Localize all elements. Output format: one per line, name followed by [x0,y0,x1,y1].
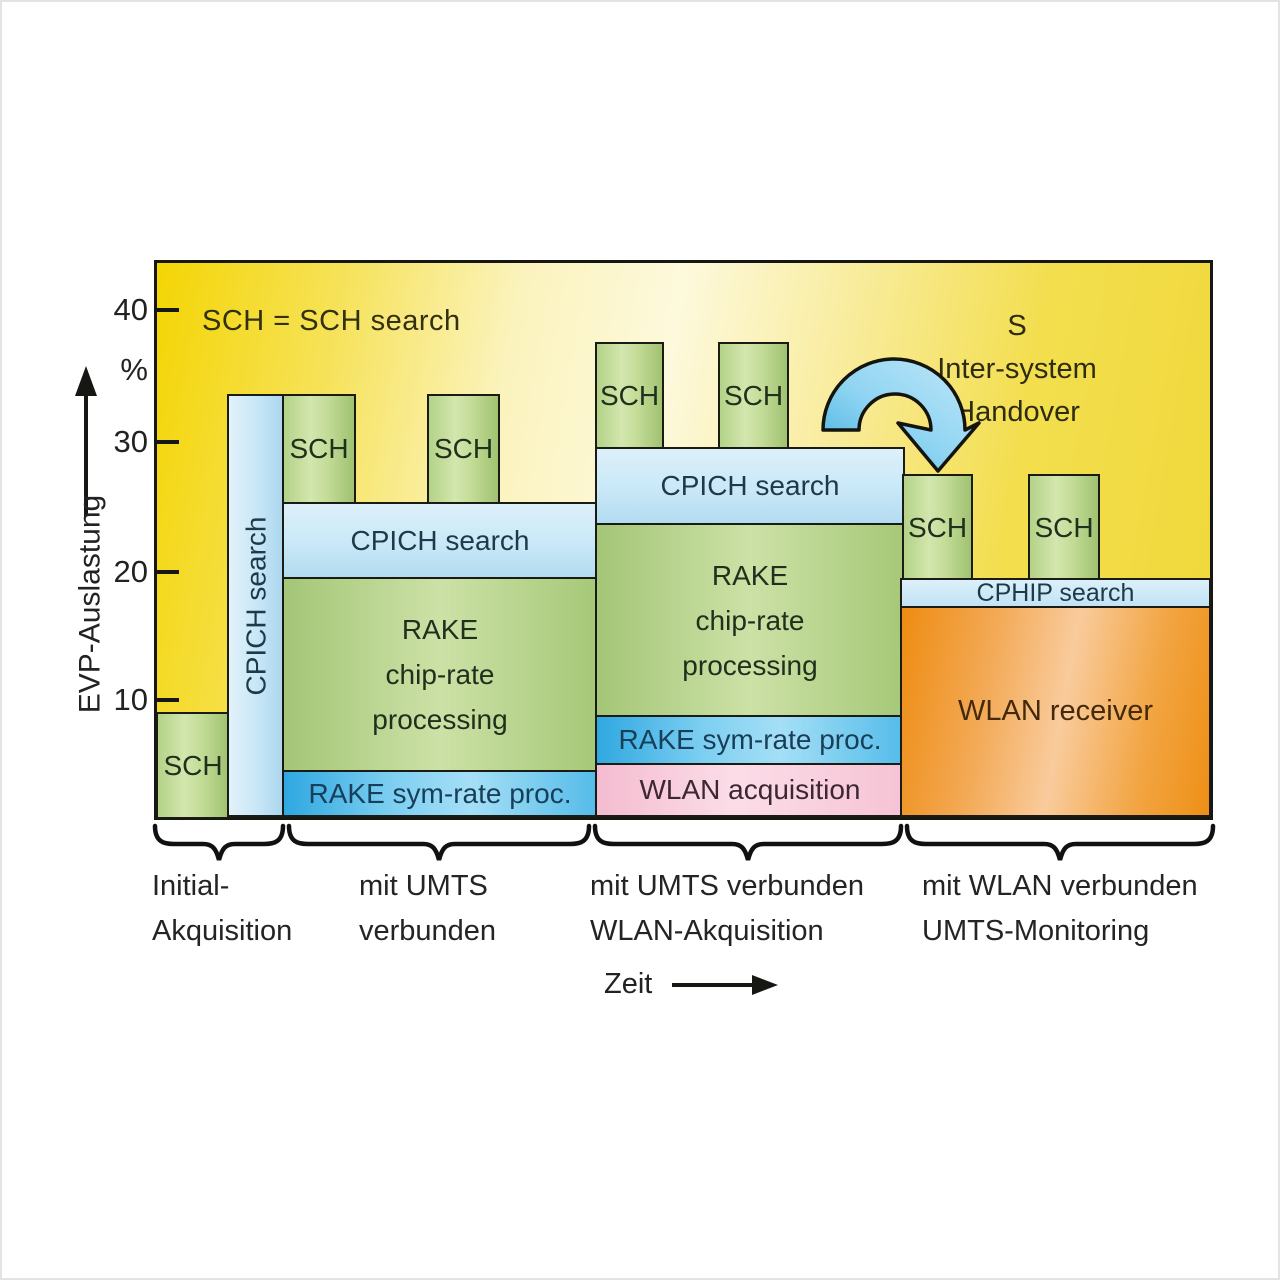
y-axis-title: EVP-Auslastung [74,482,108,727]
rake-sym-rate-strip: RAKE sym-rate proc. [282,770,598,817]
rake-chip-rate-block: RAKE chip-rate processing [595,523,905,717]
figure-canvas: SCH = SCH search S Inter-system Handover… [0,0,1280,1280]
sch-block: SCH [156,712,230,819]
y-tick-mark-10 [157,698,179,702]
phase-brace-1 [152,822,286,866]
plot-area: SCH = SCH search S Inter-system Handover… [154,260,1213,820]
x-axis-title: Zeit [604,968,652,1001]
x-axis-title-row: Zeit [604,968,780,1001]
wlan-acquisition-strip: WLAN acquisition [595,763,905,817]
rake-chip-rate-block: RAKE chip-rate processing [282,577,598,772]
rake-label-line-1: RAKE [682,553,817,598]
x-axis-arrow-icon [670,972,780,998]
phase-1-line-1: Initial- [152,864,292,909]
cpich-search-strip: CPICH search [282,502,598,579]
phase-brace-3 [592,822,904,866]
handover-curved-arrow-icon [809,350,991,486]
sch-block: SCH [282,394,356,504]
y-tick-mark-30 [157,440,179,444]
phase-4-line-2: UMTS-Monitoring [922,909,1198,954]
sch-legend: SCH = SCH search [202,305,461,338]
phase-brace-4 [904,822,1216,866]
phase-4-line-1: mit WLAN verbunden [922,864,1198,909]
phase-3-line-1: mit UMTS verbunden [590,864,864,909]
phase-2-line-2: verbunden [359,909,496,954]
cphip-search-strip: CPHIP search [900,578,1211,608]
y-tick-mark-40 [157,308,179,312]
cpich-search-vertical-label: CPICH search [240,516,272,695]
rake-label-line-2: chip-rate [372,652,507,697]
phase-1-line-2: Akquisition [152,909,292,954]
y-tick-label-40: 40 [86,292,148,328]
cpich-search-vertical-bar: CPICH search [227,394,285,817]
rake-sym-rate-strip: RAKE sym-rate proc. [595,715,905,765]
phase-label-initial-akquisition: Initial- Akquisition [152,864,292,954]
phase-label-umts-monitoring: mit WLAN verbunden UMTS-Monitoring [922,864,1198,954]
y-tick-mark-20 [157,570,179,574]
sch-block: SCH [1028,474,1100,581]
phase-label-wlan-akquisition: mit UMTS verbunden WLAN-Akquisition [590,864,864,954]
rake-label-line-3: processing [372,697,507,742]
sch-block: SCH [718,342,789,450]
phase-label-mit-umts-verbunden: mit UMTS verbunden [359,864,496,954]
phase-3-line-2: WLAN-Akquisition [590,909,864,954]
sch-block: SCH [427,394,500,504]
phase-brace-2 [286,822,592,866]
sch-block: SCH [595,342,664,450]
sch-block: SCH [902,474,973,581]
rake-label-line-3: processing [682,643,817,688]
phase-2-line-1: mit UMTS [359,864,496,909]
handover-title-line-1: S [847,305,1187,348]
wlan-receiver-block: WLAN receiver [900,606,1211,817]
rake-label-line-2: chip-rate [682,598,817,643]
rake-label-line-1: RAKE [372,607,507,652]
